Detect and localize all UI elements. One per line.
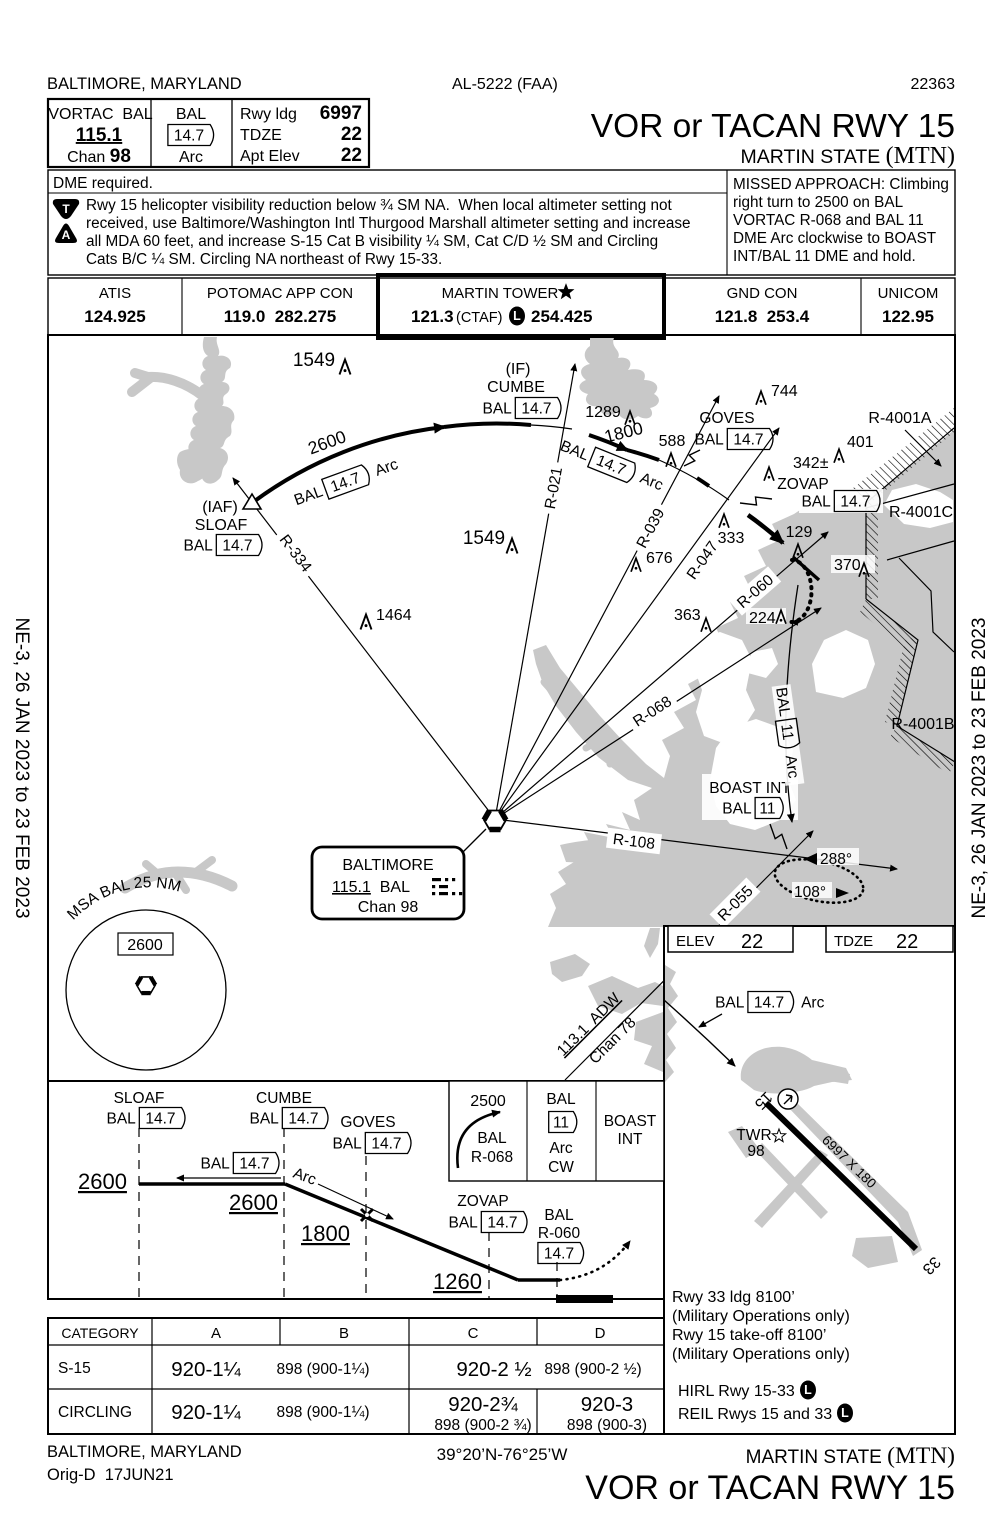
- svg-text:129: 129: [786, 524, 813, 541]
- svg-text:INT: INT: [618, 1131, 644, 1148]
- svg-text:115.1: 115.1: [76, 125, 123, 146]
- svg-text:D: D: [595, 1325, 606, 1342]
- svg-text:MARTIN TOWER: MARTIN TOWER: [442, 285, 559, 302]
- svg-text:R-060: R-060: [538, 1225, 581, 1242]
- svg-text:115.1 BAL: 115.1 BAL: [332, 879, 410, 896]
- svg-text:22: 22: [341, 145, 362, 166]
- svg-text:1549: 1549: [293, 350, 335, 371]
- svg-text:14.7: 14.7: [222, 537, 252, 554]
- svg-text:MARTIN STATE (MTN): MARTIN STATE (MTN): [746, 1443, 955, 1469]
- svg-text:CUMBE: CUMBE: [487, 379, 545, 396]
- svg-text:A: A: [62, 228, 71, 242]
- svg-text:BAL: BAL: [200, 1155, 230, 1172]
- svg-text:898 (900-3): 898 (900-3): [567, 1417, 647, 1434]
- svg-text:A: A: [211, 1325, 221, 1342]
- svg-text:INT/BAL 11 DME and hold.: INT/BAL 11 DME and hold.: [733, 248, 916, 265]
- svg-text:22: 22: [341, 124, 362, 145]
- svg-text:98: 98: [747, 1143, 764, 1160]
- svg-text:6997: 6997: [320, 103, 362, 124]
- svg-text:DME Arc clockwise to BOAST: DME Arc clockwise to BOAST: [733, 230, 936, 247]
- svg-text:ELEV: ELEV: [676, 933, 714, 950]
- svg-text:39°20’N-76°25’W: 39°20’N-76°25’W: [437, 1445, 568, 1464]
- svg-text:REIL Rwys 15 and 33: REIL Rwys 15 and 33: [678, 1406, 832, 1423]
- svg-text:2500: 2500: [470, 1093, 506, 1110]
- svg-text:BAL: BAL: [448, 1214, 478, 1231]
- svg-text:CW: CW: [548, 1159, 574, 1176]
- svg-text:R-4001C: R-4001C: [889, 504, 953, 521]
- svg-text:BOAST: BOAST: [604, 1113, 657, 1130]
- svg-text:124.925: 124.925: [84, 307, 145, 326]
- svg-text:14.7: 14.7: [544, 1245, 574, 1262]
- svg-text:R-4001A: R-4001A: [868, 410, 931, 427]
- svg-text:14.7: 14.7: [733, 431, 763, 448]
- svg-text:898 (900-2 ¾): 898 (900-2 ¾): [434, 1417, 531, 1434]
- svg-text:Rwy ldg: Rwy ldg: [240, 106, 297, 123]
- svg-text:BAL: BAL: [477, 1130, 507, 1147]
- svg-text:received, use Baltimore/Washin: received, use Baltimore/Washington Intl …: [86, 215, 691, 232]
- svg-text:TWR: TWR: [736, 1127, 771, 1144]
- svg-text:1464: 1464: [376, 607, 412, 624]
- svg-text:all MDA 60 feet, and increase: all MDA 60 feet, and increase S-15 Cat B…: [86, 233, 658, 250]
- svg-text:GOVES: GOVES: [699, 410, 754, 427]
- svg-text:14.7: 14.7: [487, 1214, 517, 1231]
- svg-text:GND CON: GND CON: [727, 285, 798, 302]
- svg-text:right turn to 2500 on BAL: right turn to 2500 on BAL: [733, 194, 903, 211]
- svg-text:Arc: Arc: [549, 1140, 573, 1157]
- svg-text:T: T: [62, 202, 70, 216]
- svg-text:108°: 108°: [794, 884, 826, 901]
- svg-text:Orig-D 17JUN21: Orig-D 17JUN21: [47, 1466, 174, 1484]
- svg-text:Rwy 33 ldg 8100’: Rwy 33 ldg 8100’: [672, 1289, 795, 1306]
- svg-text:224: 224: [749, 610, 776, 627]
- svg-text:1549: 1549: [463, 528, 505, 549]
- svg-text:B: B: [339, 1325, 349, 1342]
- svg-text:14.7: 14.7: [288, 1110, 318, 1127]
- svg-text:14.7: 14.7: [145, 1110, 175, 1127]
- svg-text:POTOMAC APP CON: POTOMAC APP CON: [207, 285, 353, 302]
- svg-text:2600: 2600: [127, 937, 163, 954]
- svg-text:BALTIMORE, MARYLAND: BALTIMORE, MARYLAND: [47, 1443, 242, 1461]
- svg-text:BAL: BAL: [722, 800, 752, 817]
- svg-text:BAL: BAL: [332, 1135, 362, 1152]
- svg-text:898 (900-2 ½): 898 (900-2 ½): [544, 1361, 641, 1378]
- svg-text:BAL: BAL: [249, 1110, 279, 1127]
- svg-text:122.95: 122.95: [882, 307, 934, 326]
- svg-text:ATIS: ATIS: [99, 285, 131, 302]
- svg-text:(Military Operations only): (Military Operations only): [672, 1346, 850, 1363]
- svg-text:333: 333: [718, 530, 745, 547]
- svg-text:R-4001B: R-4001B: [891, 716, 954, 733]
- svg-text:BAL: BAL: [694, 431, 724, 448]
- svg-text:GOVES: GOVES: [340, 1114, 395, 1131]
- svg-text:SLOAF: SLOAF: [195, 517, 248, 534]
- svg-text:(CTAF): (CTAF): [456, 310, 502, 326]
- svg-text:119.0 282.275: 119.0 282.275: [224, 307, 337, 326]
- svg-text:BAL: BAL: [544, 1207, 574, 1224]
- svg-text:ZOVAP: ZOVAP: [457, 1193, 508, 1210]
- svg-text:121.3: 121.3: [411, 307, 454, 326]
- svg-text:TDZE: TDZE: [240, 127, 282, 144]
- svg-text:L: L: [804, 1383, 812, 1397]
- svg-text:CIRCLING: CIRCLING: [58, 1404, 132, 1421]
- svg-text:HIRL Rwy 15-33: HIRL Rwy 15-33: [678, 1383, 795, 1400]
- svg-text:MARTIN STATE (MTN): MARTIN STATE (MTN): [740, 143, 955, 169]
- svg-text:BALTIMORE: BALTIMORE: [342, 857, 433, 874]
- svg-text:920-2¾: 920-2¾: [448, 1393, 518, 1416]
- svg-text:BAL: BAL: [801, 493, 831, 510]
- svg-text:11: 11: [777, 723, 796, 741]
- svg-text:BAL: BAL: [183, 537, 213, 554]
- svg-text:11: 11: [759, 800, 775, 817]
- svg-text:676: 676: [646, 550, 673, 567]
- svg-text:CUMBE: CUMBE: [256, 1090, 312, 1107]
- svg-text:370: 370: [834, 557, 861, 574]
- svg-text:14.7: 14.7: [174, 127, 204, 144]
- svg-text:MISSED APPROACH: Climbing: MISSED APPROACH: Climbing: [733, 176, 949, 193]
- svg-text:363: 363: [674, 607, 701, 624]
- svg-text:VORTAC R-068 and BAL 11: VORTAC R-068 and BAL 11: [733, 212, 924, 229]
- svg-text:588: 588: [659, 433, 686, 450]
- svg-text:898 (900-1¼): 898 (900-1¼): [276, 1361, 369, 1378]
- svg-text:C: C: [468, 1325, 479, 1342]
- svg-text:Arc: Arc: [801, 994, 825, 1011]
- svg-text:BAL: BAL: [106, 1110, 136, 1127]
- svg-text:Rwy 15 take-off 8100’: Rwy 15 take-off 8100’: [672, 1327, 826, 1344]
- svg-text:TDZE: TDZE: [834, 933, 873, 950]
- svg-text:254.425: 254.425: [531, 307, 592, 326]
- svg-text:DME required.: DME required.: [53, 175, 153, 192]
- svg-text:14.7: 14.7: [754, 994, 784, 1011]
- svg-text:UNICOM: UNICOM: [878, 285, 939, 302]
- svg-text:NE-3, 26 JAN 2023 to 23 FEB 20: NE-3, 26 JAN 2023 to 23 FEB 2023: [11, 617, 32, 918]
- svg-text:920-1¼: 920-1¼: [171, 1401, 241, 1424]
- svg-text:920-2 ½: 920-2 ½: [456, 1358, 531, 1381]
- svg-text:BAL: BAL: [546, 1091, 576, 1108]
- svg-text:14.7: 14.7: [840, 493, 870, 510]
- svg-text:CATEGORY: CATEGORY: [61, 1325, 139, 1341]
- svg-text:Chan 98: Chan 98: [358, 899, 419, 916]
- svg-text:VORTAC BAL: VORTAC BAL: [48, 106, 152, 123]
- svg-text:AL-5222 (FAA): AL-5222 (FAA): [452, 76, 558, 93]
- svg-text:22: 22: [896, 931, 918, 953]
- svg-text:VOR or TACAN RWY 15: VOR or TACAN RWY 15: [591, 108, 955, 145]
- svg-text:11: 11: [553, 1114, 569, 1131]
- svg-text:22363: 22363: [911, 76, 956, 93]
- svg-text:14.7: 14.7: [521, 400, 551, 417]
- svg-text:Arc: Arc: [179, 149, 203, 166]
- svg-text:Chan 98: Chan 98: [67, 146, 131, 167]
- svg-text:Cats B/C ¼ SM. Circling NA nor: Cats B/C ¼ SM. Circling NA northeast of …: [86, 251, 442, 268]
- svg-text:BAL: BAL: [176, 106, 206, 123]
- svg-text:342±: 342±: [793, 455, 829, 472]
- svg-text:920-3: 920-3: [581, 1393, 633, 1416]
- svg-text:401: 401: [847, 434, 874, 451]
- svg-text:BOAST INT: BOAST INT: [709, 780, 791, 797]
- svg-text:14.7: 14.7: [239, 1155, 269, 1172]
- svg-text:Rwy 15 helicopter visibility r: Rwy 15 helicopter visibility reduction b…: [86, 197, 673, 214]
- svg-text:(Military Operations only): (Military Operations only): [672, 1308, 850, 1325]
- svg-text:(IAF): (IAF): [202, 499, 238, 516]
- svg-text:2600: 2600: [229, 1190, 278, 1215]
- svg-text:L: L: [513, 309, 521, 323]
- svg-text:BAL: BAL: [482, 400, 512, 417]
- svg-text:SLOAF: SLOAF: [114, 1090, 165, 1107]
- svg-text:BAL: BAL: [715, 994, 745, 1011]
- svg-text:288°: 288°: [820, 851, 852, 868]
- svg-text:1260: 1260: [433, 1269, 482, 1294]
- svg-text:744: 744: [771, 383, 798, 400]
- svg-text:920-1¼: 920-1¼: [171, 1358, 241, 1381]
- svg-text:Apt Elev: Apt Elev: [240, 148, 300, 165]
- svg-text:S-15: S-15: [58, 1360, 91, 1377]
- svg-text:2600: 2600: [78, 1169, 127, 1194]
- svg-text:(IF): (IF): [506, 361, 531, 378]
- svg-text:NE-3, 26 JAN 2023 to 23 FEB 20: NE-3, 26 JAN 2023 to 23 FEB 2023: [969, 617, 990, 918]
- svg-text:Arc: Arc: [782, 754, 802, 780]
- svg-text:898 (900-1¼): 898 (900-1¼): [276, 1404, 369, 1421]
- svg-text:BALTIMORE, MARYLAND: BALTIMORE, MARYLAND: [47, 75, 242, 93]
- svg-text:121.8 253.4: 121.8 253.4: [715, 307, 810, 326]
- svg-text:22: 22: [741, 931, 763, 953]
- svg-text:1800: 1800: [301, 1221, 350, 1246]
- svg-text:14.7: 14.7: [371, 1135, 401, 1152]
- svg-text:1289: 1289: [585, 404, 621, 421]
- svg-text:L: L: [841, 1406, 849, 1420]
- svg-text:VOR or TACAN RWY 15: VOR or TACAN RWY 15: [585, 1469, 955, 1507]
- svg-text:R-068: R-068: [471, 1149, 513, 1166]
